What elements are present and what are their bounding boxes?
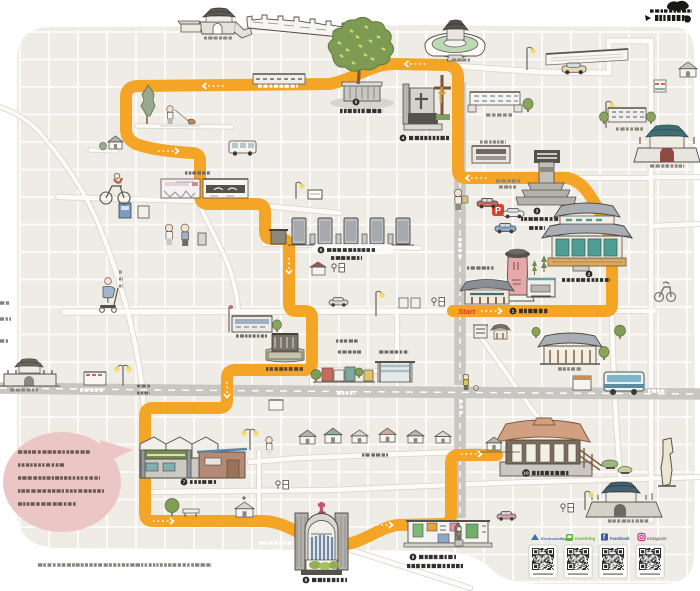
- svg-text:9: 9: [412, 555, 415, 561]
- svg-text:Instagram: Instagram: [647, 536, 667, 541]
- svg-text:6: 6: [320, 248, 323, 254]
- svg-text:7: 7: [183, 480, 186, 486]
- svg-text:1: 1: [512, 309, 515, 315]
- svg-text:10: 10: [523, 471, 529, 477]
- svg-text:2: 2: [588, 272, 591, 278]
- svg-text:P: P: [495, 206, 501, 216]
- svg-text:8: 8: [305, 578, 308, 584]
- svg-text:3: 3: [536, 209, 539, 215]
- svg-text:Facebook: Facebook: [610, 536, 630, 541]
- svg-text:4: 4: [402, 136, 405, 142]
- svg-text:ElectronicMap: ElectronicMap: [541, 537, 568, 541]
- svg-text:5: 5: [355, 100, 358, 106]
- svg-text:Start: Start: [458, 307, 476, 316]
- svg-text:naverblog: naverblog: [575, 536, 595, 541]
